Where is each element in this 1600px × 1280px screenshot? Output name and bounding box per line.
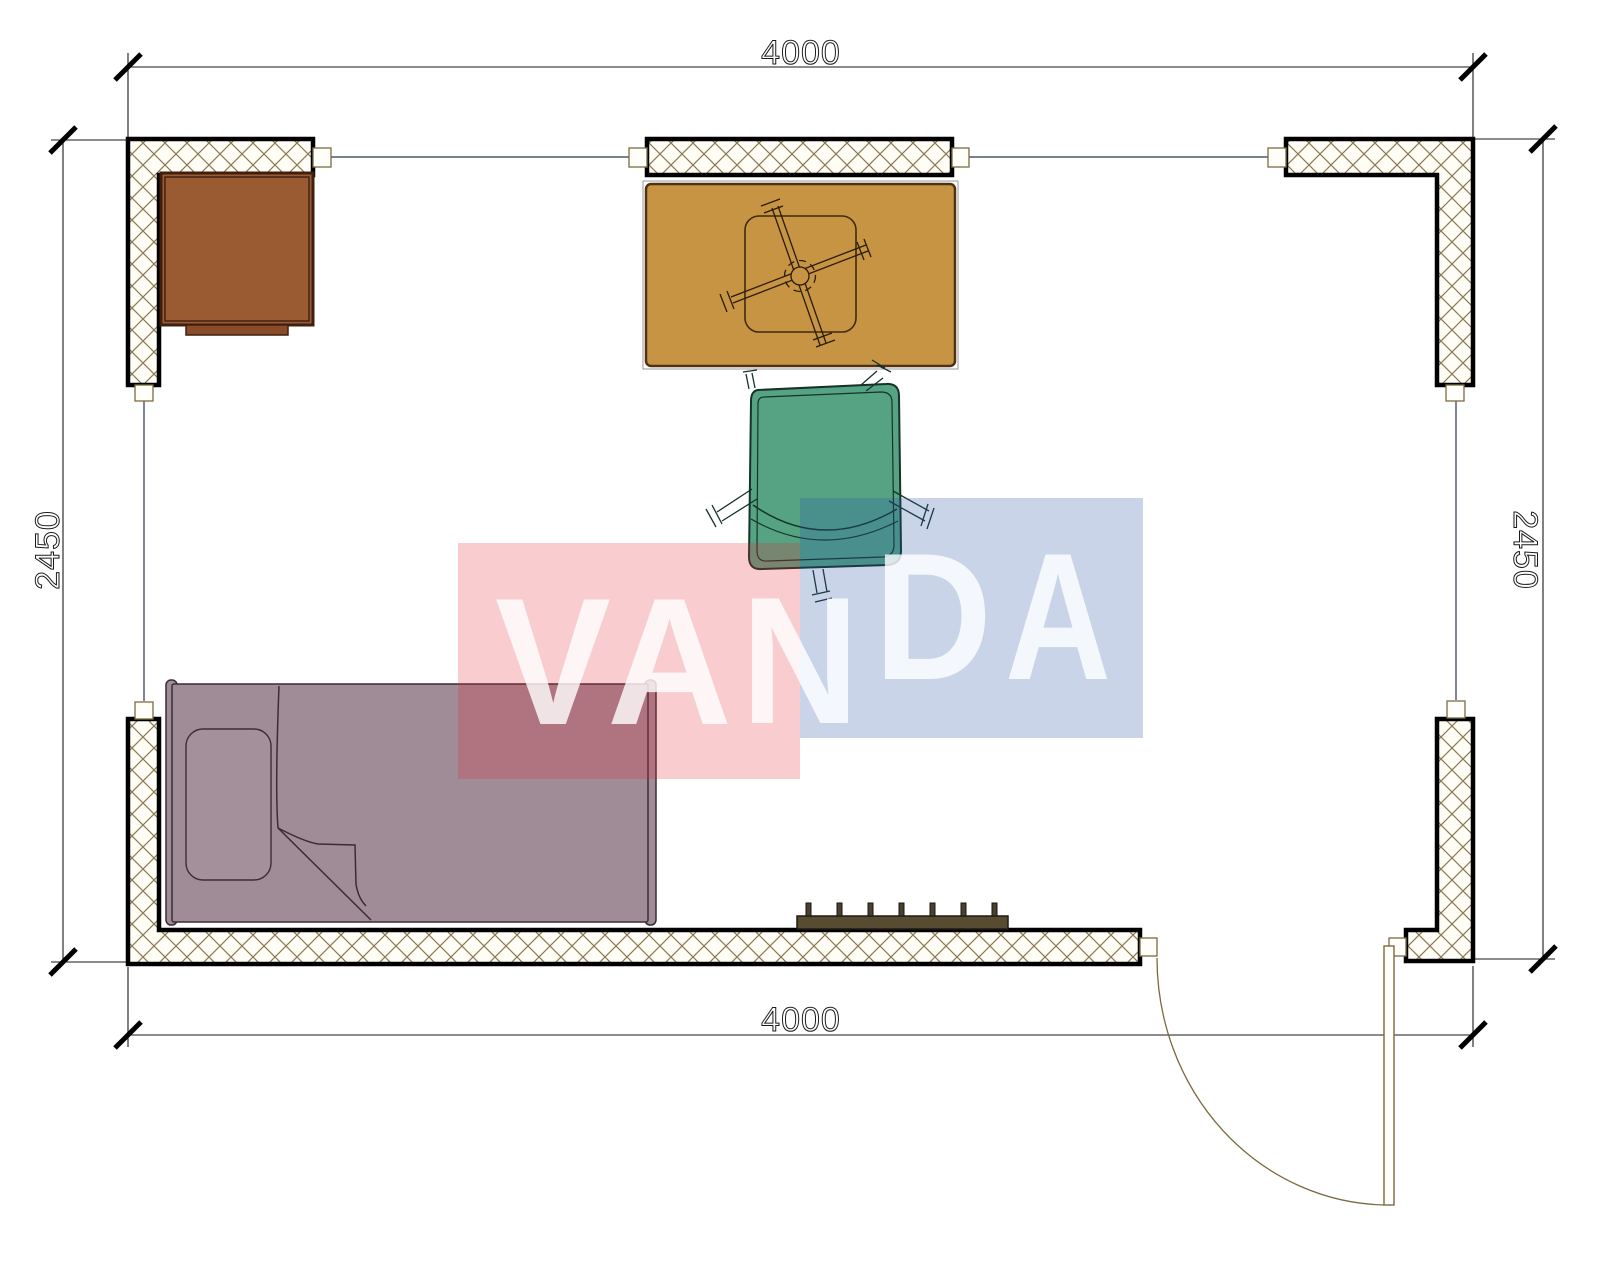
svg-text:2450: 2450 xyxy=(1506,510,1544,590)
svg-text:A: A xyxy=(607,561,732,763)
svg-text:V: V xyxy=(495,561,611,763)
svg-text:2450: 2450 xyxy=(29,510,67,590)
svg-text:N: N xyxy=(741,560,859,762)
svg-text:D: D xyxy=(874,516,992,718)
svg-text:4000: 4000 xyxy=(761,34,841,72)
svg-text:4000: 4000 xyxy=(761,1001,841,1039)
svg-text:A: A xyxy=(1005,516,1111,718)
